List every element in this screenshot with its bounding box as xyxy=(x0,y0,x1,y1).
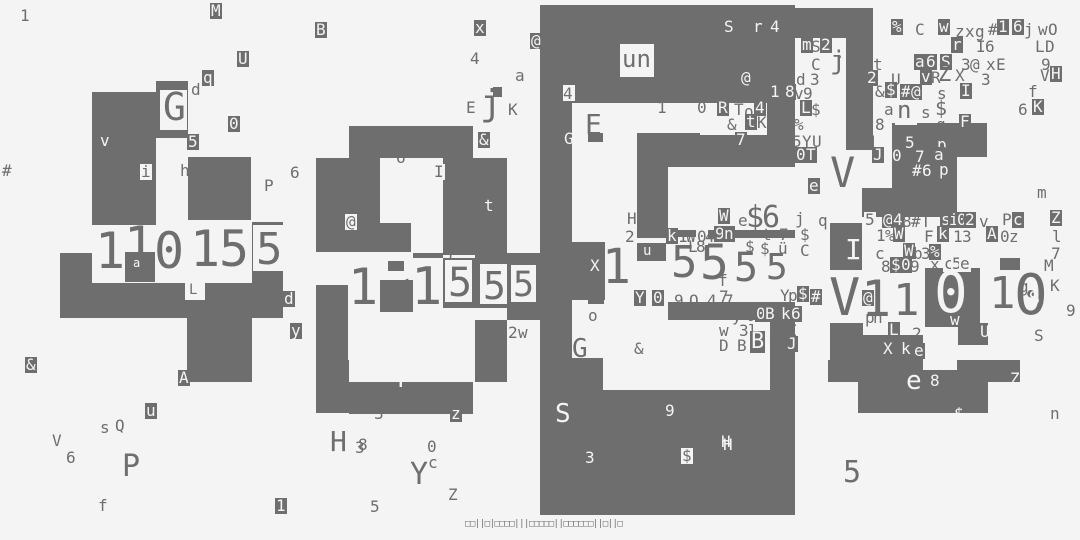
glyph: $ xyxy=(745,239,755,255)
glyph: Z xyxy=(1010,371,1020,387)
glyph: @ xyxy=(740,70,752,86)
glyph: @ xyxy=(970,57,980,73)
glyph: Y xyxy=(634,290,646,306)
glyph: # xyxy=(767,117,777,133)
glyph: w xyxy=(518,325,528,341)
glyph: j xyxy=(830,48,846,74)
glyph: p xyxy=(938,162,950,178)
glyph: y xyxy=(290,323,302,339)
glyph: D xyxy=(1045,39,1055,55)
glyph: $ xyxy=(1028,287,1040,307)
glyph: # xyxy=(911,214,921,230)
glyph: D xyxy=(719,338,729,354)
glyph: $ xyxy=(760,241,770,257)
noise-canvas: 1MBUqdG05vih#P6x@4aEjK&e6It@Jdy&AusQV6Pf… xyxy=(0,0,1080,540)
glyph: g xyxy=(1019,279,1029,295)
glyph: t xyxy=(745,114,757,130)
glyph: C xyxy=(915,22,925,38)
glyph: z xyxy=(450,406,462,422)
glyph: G xyxy=(163,88,186,126)
glyph: 2 xyxy=(964,212,976,228)
glyph: 4 xyxy=(769,19,781,35)
noise-block xyxy=(475,320,507,382)
glyph: 6 xyxy=(1018,102,1028,118)
glyph: V xyxy=(830,152,855,194)
glyph: 0 xyxy=(154,226,184,276)
glyph: Z xyxy=(938,64,951,86)
glyph: q xyxy=(786,39,796,55)
glyph: I xyxy=(960,83,972,99)
noise-block xyxy=(388,261,404,271)
glyph: S xyxy=(555,401,571,427)
glyph: n xyxy=(897,98,911,122)
glyph: j xyxy=(480,86,502,122)
noise-block xyxy=(795,8,873,38)
glyph: L xyxy=(800,100,812,116)
glyph: 7 xyxy=(735,132,747,148)
glyph: d xyxy=(762,149,772,165)
glyph: B xyxy=(764,306,776,322)
glyph: & xyxy=(875,84,885,100)
glyph: 5 xyxy=(864,212,876,228)
glyph: 6 xyxy=(985,39,995,55)
glyph: k xyxy=(937,226,949,242)
glyph: e xyxy=(906,368,922,394)
glyph: Q xyxy=(689,293,699,309)
glyph: K xyxy=(1032,99,1044,115)
glyph: w xyxy=(938,19,950,35)
glyph: e xyxy=(913,343,925,359)
glyph: k xyxy=(900,341,912,357)
glyph: 6 xyxy=(922,163,932,179)
glyph: z xyxy=(1009,229,1019,245)
glyph: S xyxy=(1034,328,1044,344)
glyph: L xyxy=(1035,39,1045,55)
glyph: 8 xyxy=(930,373,940,389)
glyph: O xyxy=(1048,22,1058,38)
glyph: & xyxy=(25,357,37,373)
glyph: Z xyxy=(780,143,792,163)
glyph: 7 xyxy=(719,289,729,305)
glyph: S xyxy=(723,19,735,35)
glyph: % xyxy=(946,326,956,342)
glyph: j xyxy=(330,370,340,386)
glyph: w xyxy=(1038,22,1048,38)
glyph: K xyxy=(757,115,767,131)
glyph: 2 xyxy=(912,326,922,342)
glyph: 0 xyxy=(892,148,902,164)
glyph: & xyxy=(478,132,490,148)
glyph: 0 xyxy=(697,100,707,116)
glyph: W xyxy=(893,226,905,242)
noise-block xyxy=(637,133,700,167)
glyph: 2 xyxy=(508,325,518,341)
glyph: i xyxy=(140,164,152,180)
glyph: 4 xyxy=(470,51,480,67)
glyph: un xyxy=(622,47,651,71)
glyph: z xyxy=(752,149,762,165)
glyph: K xyxy=(508,102,518,118)
glyph: 5 xyxy=(905,135,915,151)
glyph: 5 xyxy=(370,499,380,515)
glyph: 1 xyxy=(769,84,781,100)
glyph: 3 xyxy=(374,406,384,422)
glyph: $ xyxy=(681,448,693,464)
glyph: d xyxy=(283,291,295,307)
noise-block xyxy=(858,382,988,413)
glyph: 2 xyxy=(625,229,635,245)
glyph: 5 xyxy=(448,263,472,303)
glyph: 5 xyxy=(513,268,534,303)
glyph: G xyxy=(572,336,588,362)
glyph: 1 xyxy=(95,226,125,276)
glyph: L xyxy=(189,283,197,297)
glyph: % xyxy=(794,117,804,133)
glyph: F xyxy=(959,114,971,130)
glyph: P xyxy=(264,178,274,194)
glyph: n xyxy=(1050,406,1060,422)
glyph: 1 xyxy=(20,8,30,24)
glyph: H xyxy=(1050,66,1062,82)
noise-block xyxy=(188,360,252,382)
glyph: 1 xyxy=(997,19,1009,35)
glyph: h xyxy=(180,163,190,179)
noise-cutout xyxy=(637,320,700,358)
glyph: G xyxy=(564,131,574,147)
glyph: H xyxy=(627,211,637,227)
glyph: $ xyxy=(811,102,821,118)
glyph: 4 xyxy=(707,293,717,309)
glyph: d xyxy=(190,82,202,98)
glyph: M xyxy=(1044,258,1054,274)
glyph: M xyxy=(210,3,222,19)
glyph: 1 xyxy=(411,261,442,313)
glyph: 0 xyxy=(228,116,240,132)
glyph: # xyxy=(2,163,12,179)
glyph: U xyxy=(980,324,990,340)
glyph: b xyxy=(658,211,668,227)
glyph: @ xyxy=(530,33,542,49)
glyph: J xyxy=(872,147,884,163)
glyph: $ xyxy=(954,406,964,422)
glyph: L xyxy=(888,322,900,338)
noise-block xyxy=(443,158,507,255)
glyph: r xyxy=(951,37,963,53)
glyph: s xyxy=(100,420,110,436)
glyph: x xyxy=(965,24,975,40)
noise-block xyxy=(637,243,669,261)
glyph: C xyxy=(800,243,810,259)
glyph: 8 xyxy=(358,437,368,453)
glyph: 6 xyxy=(1012,19,1024,35)
glyph: E xyxy=(466,100,476,116)
glyph: < xyxy=(396,274,409,296)
glyph: I xyxy=(433,164,445,180)
noise-block xyxy=(60,253,92,318)
glyph: Z xyxy=(448,487,458,503)
glyph: k xyxy=(666,228,678,244)
glyph: @ xyxy=(345,214,357,230)
glyph: 9 xyxy=(910,259,920,275)
glyph: Q xyxy=(742,149,752,165)
glyph: u xyxy=(643,244,651,258)
glyph: 1 xyxy=(190,224,220,274)
glyph: t xyxy=(484,198,494,214)
glyph: V xyxy=(829,272,860,324)
glyph: J xyxy=(786,336,798,352)
glyph: X xyxy=(882,341,894,357)
glyph: H xyxy=(330,428,347,456)
glyph: 6 xyxy=(637,211,647,227)
glyph: 5 xyxy=(843,458,861,488)
glyph: 8 xyxy=(696,239,706,255)
glyph: $ xyxy=(797,286,809,302)
glyph: 9 xyxy=(665,403,675,419)
glyph: f xyxy=(98,498,108,514)
glyph: E xyxy=(585,111,602,139)
glyph: n xyxy=(873,310,883,326)
glyph: @ xyxy=(862,290,874,306)
glyph: B xyxy=(315,22,327,38)
glyph: x xyxy=(474,20,486,36)
glyph: 3 xyxy=(981,72,991,88)
glyph: 6 xyxy=(396,150,406,166)
glyph: e xyxy=(808,178,820,194)
glyph: n xyxy=(723,226,735,242)
glyph: A xyxy=(178,370,190,386)
glyph: H xyxy=(723,437,733,453)
glyph: 3 xyxy=(585,450,595,466)
glyph: a xyxy=(515,68,525,84)
glyph: 1 xyxy=(602,243,631,291)
glyph: 6 xyxy=(66,450,76,466)
glyph: e xyxy=(959,256,971,272)
glyph: x xyxy=(930,257,940,273)
glyph: N xyxy=(791,22,801,38)
glyph: & xyxy=(777,117,787,133)
glyph: ü xyxy=(778,241,788,257)
glyph: Y xyxy=(410,460,428,490)
glyph: U xyxy=(237,51,249,67)
glyph: T xyxy=(805,147,817,163)
glyph: A xyxy=(986,226,998,242)
glyph: P xyxy=(122,452,140,482)
glyph: 5 xyxy=(483,267,506,305)
glyph: 9 xyxy=(674,293,684,309)
glyph: B xyxy=(750,331,765,353)
glyph: Z xyxy=(1050,210,1062,226)
glyph: 5 xyxy=(256,228,283,272)
noise-block xyxy=(380,223,411,252)
glyph: P xyxy=(1002,212,1012,228)
glyph: V xyxy=(52,433,62,449)
glyph: 0 xyxy=(652,290,664,306)
glyph: q xyxy=(818,213,828,229)
glyph: c xyxy=(1012,212,1024,228)
glyph: I xyxy=(845,236,862,264)
noise-block xyxy=(188,157,251,220)
glyph: 5 xyxy=(219,224,249,274)
glyph: V xyxy=(1040,68,1050,84)
glyph: X xyxy=(590,258,600,274)
glyph: a xyxy=(884,102,894,118)
glyph: g xyxy=(776,338,786,354)
glyph: @ xyxy=(910,84,922,100)
glyph: 5 xyxy=(187,134,199,150)
glyph: K xyxy=(1050,278,1060,294)
glyph: 1 xyxy=(657,100,667,116)
glyph: c xyxy=(428,455,438,471)
glyph: r xyxy=(752,19,764,35)
glyph: 6 xyxy=(290,165,300,181)
glyph: 1 xyxy=(275,498,287,514)
noise-block xyxy=(828,360,892,382)
glyph: q xyxy=(202,70,214,86)
glyph: 1 xyxy=(348,262,378,312)
glyph: q xyxy=(936,117,946,133)
noise-cutout xyxy=(603,358,770,390)
glyph: & xyxy=(634,341,644,357)
noise-block xyxy=(92,92,156,225)
glyph: Q xyxy=(115,418,125,434)
glyph: v xyxy=(100,133,110,149)
glyph: 4 xyxy=(563,86,573,102)
glyph: u xyxy=(145,403,157,419)
glyph: a xyxy=(133,257,140,269)
glyph: E xyxy=(996,57,1006,73)
noise-block xyxy=(316,158,380,252)
glyph: r xyxy=(395,366,411,392)
glyph: v xyxy=(920,69,932,85)
glyph: o xyxy=(588,308,598,324)
glyph: 1 xyxy=(989,272,1016,316)
glyph: j xyxy=(740,37,750,53)
glyph: 6 xyxy=(790,306,802,322)
glyph: 1 xyxy=(893,279,920,323)
glyph: k xyxy=(350,332,366,358)
glyph: # xyxy=(912,163,922,179)
glyph: H xyxy=(729,54,739,70)
glyph: R xyxy=(717,100,729,116)
glyph: F xyxy=(781,22,791,38)
glyph: l xyxy=(1052,229,1062,245)
glyph: 9 xyxy=(1066,303,1076,319)
glyph: s xyxy=(921,105,931,121)
glyph: # xyxy=(810,289,822,305)
glyph: m xyxy=(1037,185,1047,201)
glyph: $ xyxy=(885,82,897,98)
binary-strip: □□||□|□□□□|||□□□□□||□□□□□□||□||□ xyxy=(465,520,622,529)
glyph: % xyxy=(891,19,903,35)
glyph: 8 xyxy=(875,117,885,133)
glyph: B xyxy=(737,338,747,354)
glyph: j xyxy=(1024,22,1034,38)
glyph: W xyxy=(718,208,730,224)
